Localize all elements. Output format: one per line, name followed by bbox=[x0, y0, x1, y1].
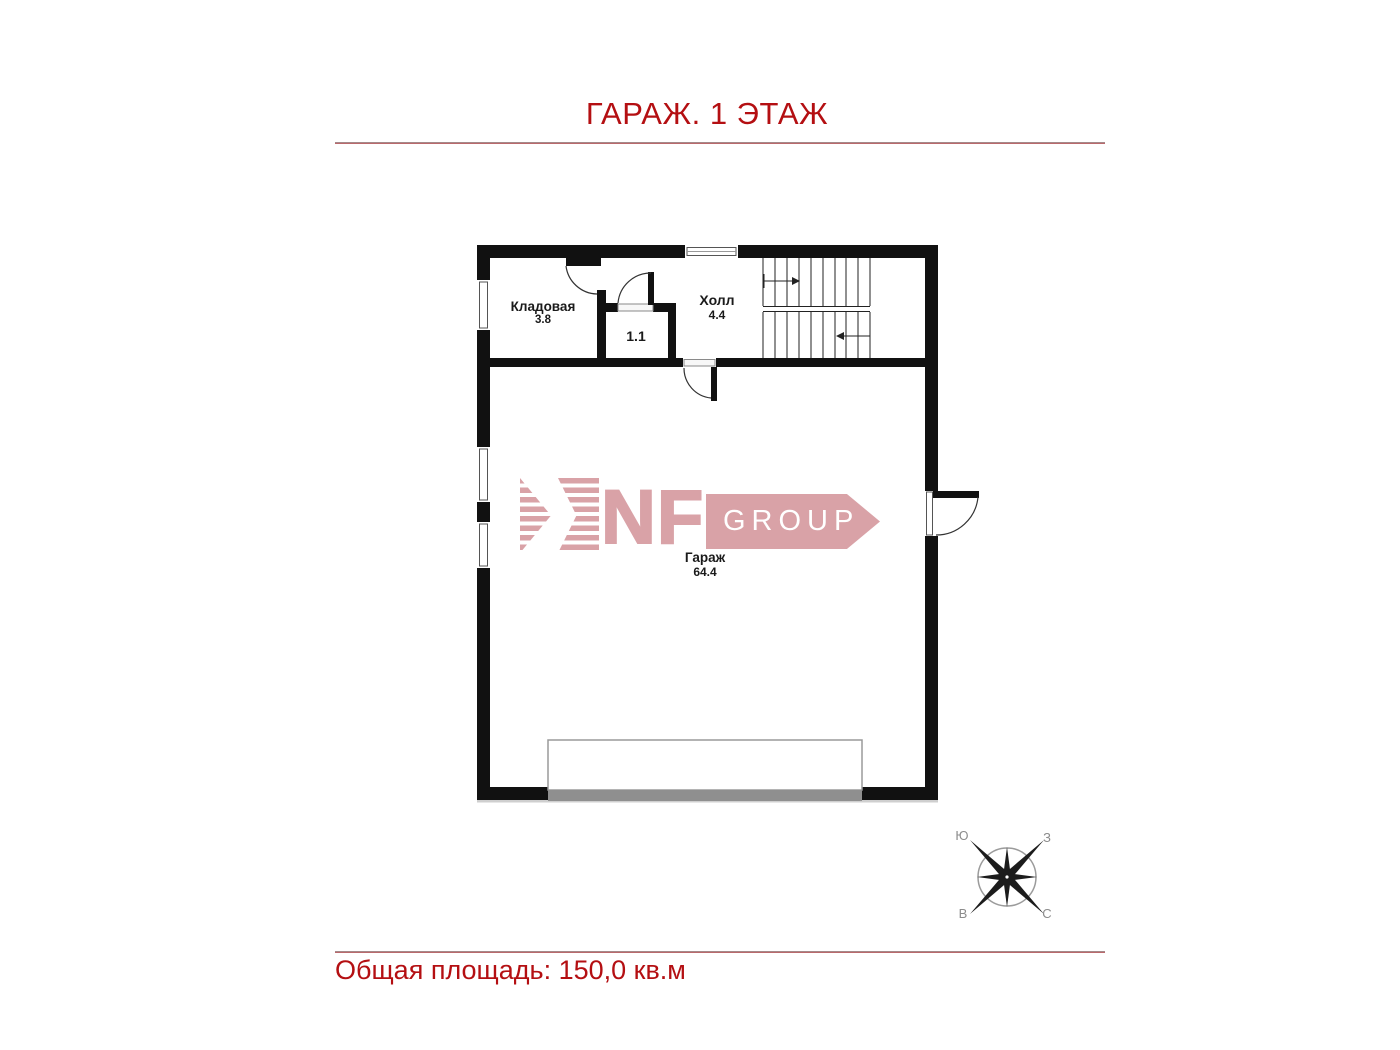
room-name: Холл bbox=[699, 292, 734, 308]
logo-stripes-left bbox=[520, 478, 551, 553]
room-label-storage: Кладовая 3.8 bbox=[511, 299, 576, 326]
floor-plan-page: ГАРАЖ. 1 ЭТАЖ Общая площадь: 150,0 кв.м bbox=[0, 0, 1400, 1050]
stairs-down-arrow bbox=[836, 329, 870, 343]
compass-label-west: З bbox=[1043, 830, 1051, 845]
hall-garage-door-leaf bbox=[711, 367, 717, 401]
staircase bbox=[763, 258, 870, 358]
stairs-up-arrow bbox=[764, 274, 800, 288]
room-area: 1.1 bbox=[626, 328, 645, 344]
room-area: 3.8 bbox=[511, 314, 576, 326]
room-label-hall: Холл 4.4 bbox=[699, 292, 734, 322]
nf-logo-suffix: GROUP bbox=[706, 505, 859, 538]
garage-gate bbox=[548, 740, 862, 801]
exterior-door-leaf bbox=[933, 491, 979, 498]
room-area: 4.4 bbox=[699, 308, 734, 322]
room-name: Кладовая bbox=[511, 299, 576, 314]
room-label-small-room: 1.1 bbox=[626, 328, 645, 344]
nf-logo-brand: NF bbox=[601, 489, 704, 546]
logo-stripes-right bbox=[558, 478, 599, 553]
compass-rose-icon bbox=[970, 840, 1044, 914]
compass-label-south: Ю bbox=[955, 828, 968, 843]
compass-label-north: С bbox=[1042, 906, 1051, 921]
nf-logo-banner: GROUP bbox=[706, 494, 880, 549]
storage-door-leaf bbox=[566, 258, 601, 266]
small-room-door-leaf bbox=[648, 272, 654, 305]
compass-label-east: В bbox=[959, 906, 968, 921]
room-area: 64.4 bbox=[685, 565, 725, 579]
nf-logo-mark-icon bbox=[520, 478, 599, 553]
